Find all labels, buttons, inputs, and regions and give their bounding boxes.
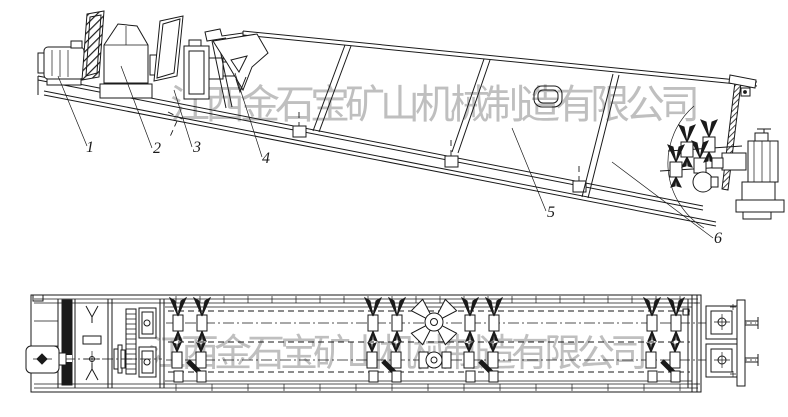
part-label-6: 6 xyxy=(714,230,722,247)
plan-drive-section xyxy=(26,299,162,388)
part-label-2: 2 xyxy=(153,140,161,157)
plan-view: 江西金石宝矿山机械制造有限公司 xyxy=(26,295,758,392)
drawing-sheet: 江西金石宝矿山机械制造有限公司 xyxy=(0,0,788,417)
discharge-motor xyxy=(736,129,784,219)
center-coupling xyxy=(419,352,451,368)
engineering-drawing: 江西金石宝矿山机械制造有限公司 xyxy=(0,0,788,417)
part-label-3: 3 xyxy=(192,139,201,156)
part-label-4: 4 xyxy=(262,150,270,167)
belt-guard xyxy=(82,11,104,80)
part-label-5: 5 xyxy=(547,204,555,221)
end-bearings xyxy=(683,300,758,387)
plan-motor xyxy=(26,346,66,373)
part-label-1: 1 xyxy=(86,139,94,156)
side-elevation-view: 江西金石宝矿山机械制造有限公司 xyxy=(38,11,784,247)
